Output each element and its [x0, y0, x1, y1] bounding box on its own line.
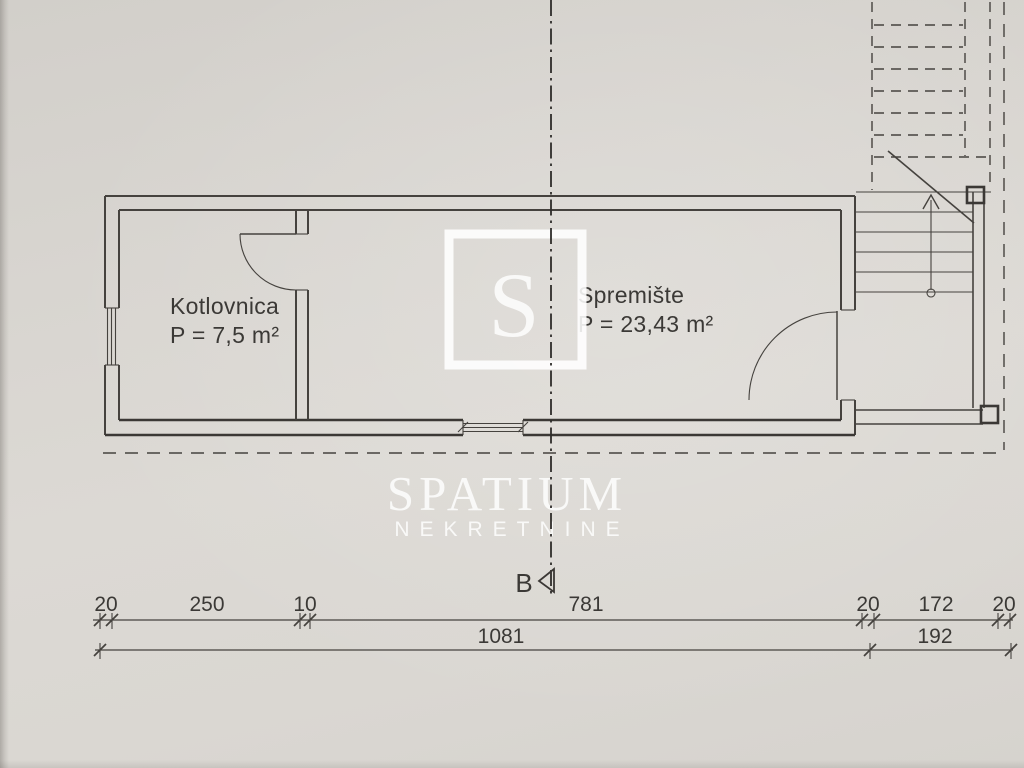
room-name: Kotlovnica — [170, 293, 279, 319]
watermark: S SPATIUM NEKRETNINE — [387, 234, 630, 541]
window-left — [108, 308, 116, 365]
dim-value: 192 — [917, 625, 952, 648]
dimension-chain-bottom: 1081 192 — [94, 625, 1017, 659]
partition-wall — [296, 210, 308, 420]
door-swing-arc — [749, 312, 837, 400]
column — [967, 187, 984, 203]
door-right-wall — [749, 311, 837, 400]
dim-value: 20 — [856, 593, 879, 616]
floorplan-drawing: 20 250 10 781 20 172 20 1081 192 Kotlovn… — [0, 0, 1024, 768]
window-bottom — [458, 422, 528, 432]
dim-value: 1081 — [478, 625, 525, 648]
dim-value: 20 — [94, 593, 117, 616]
dim-value: 172 — [918, 593, 953, 616]
dim-value: 20 — [992, 593, 1015, 616]
watermark-subtitle: NEKRETNINE — [394, 518, 629, 541]
dimension-ticks — [94, 643, 1017, 659]
door-partition — [240, 234, 296, 290]
column — [981, 406, 998, 423]
staircase — [856, 2, 1004, 450]
room-area: P = 7,5 m² — [170, 322, 279, 348]
section-label: B — [515, 568, 532, 598]
dimension-chain-top: 20 250 10 781 20 172 20 — [93, 593, 1016, 629]
watermark-letter: S — [488, 254, 539, 356]
room-name: Spremište — [578, 282, 684, 308]
stair-treads-dashed — [874, 25, 988, 157]
walk-line-start-circle — [927, 289, 935, 297]
room-label-spremiste: Spremište P = 23,43 m² — [578, 282, 714, 337]
room-label-kotlovnica: Kotlovnica P = 7,5 m² — [170, 293, 279, 348]
dim-value: 10 — [293, 593, 316, 616]
floorplan-photo: 20 250 10 781 20 172 20 1081 192 Kotlovn… — [0, 0, 1024, 768]
dim-value: 250 — [189, 593, 224, 616]
dim-value: 781 — [568, 593, 603, 616]
door-swing-arc — [240, 234, 296, 290]
room-area: P = 23,43 m² — [578, 311, 714, 337]
watermark-name: SPATIUM — [387, 466, 627, 521]
